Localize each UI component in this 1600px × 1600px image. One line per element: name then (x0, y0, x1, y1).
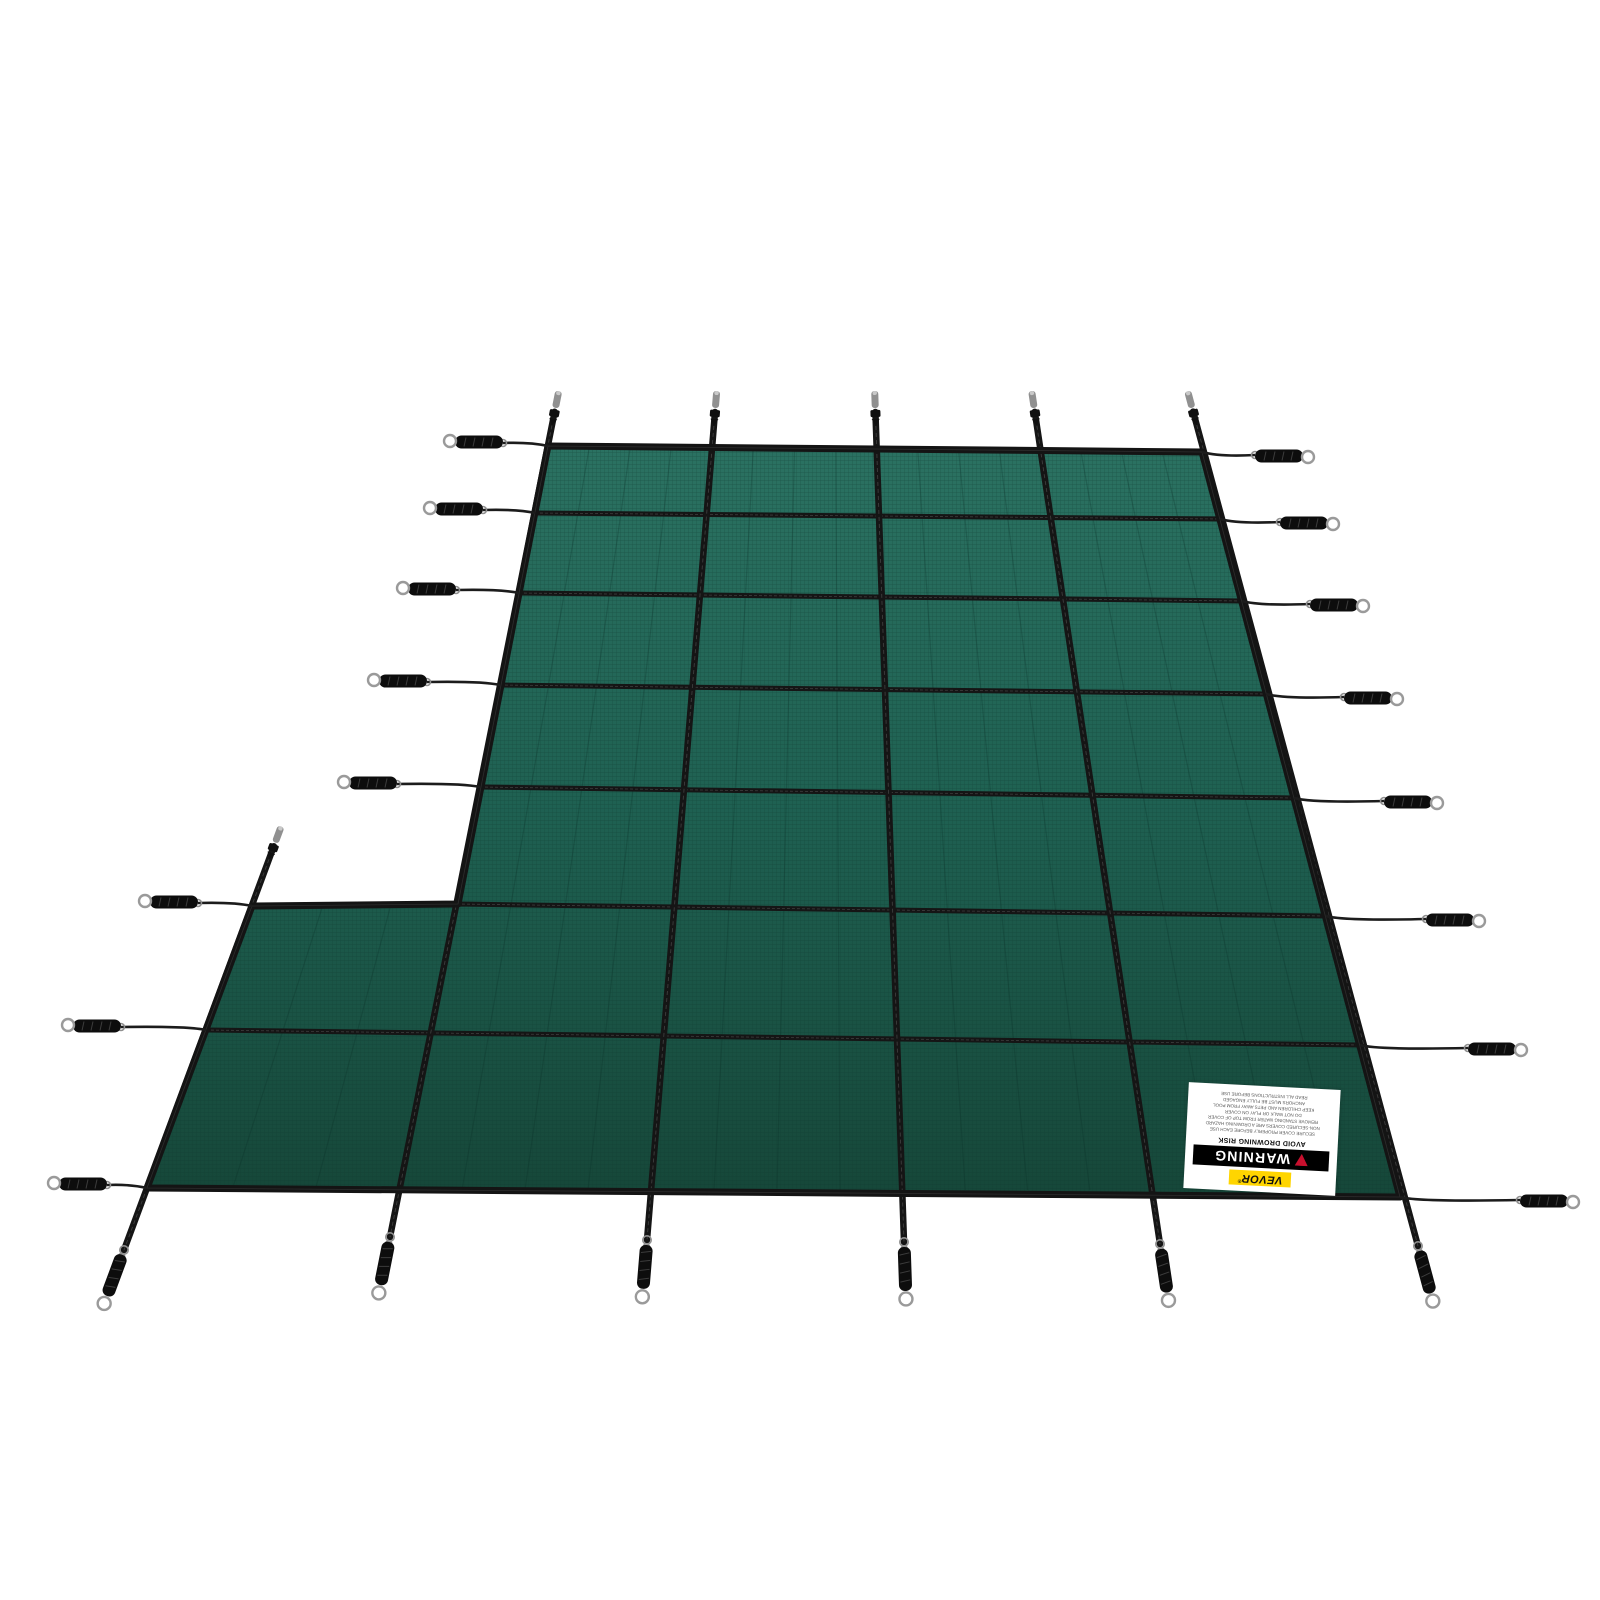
vevor-logo-text: VEVOR (1241, 1172, 1283, 1186)
spring-assembly (1266, 692, 1403, 706)
bottom-anchor (372, 1233, 395, 1300)
spring-assembly (1360, 1043, 1527, 1057)
warning-title: WARNING (1214, 1148, 1291, 1166)
spring-assembly (368, 674, 500, 688)
spring-assembly (1220, 517, 1339, 531)
scene (48, 390, 1579, 1310)
bottom-anchors (98, 1233, 1440, 1310)
spring-assembly (1202, 450, 1314, 464)
pool-cover-render (0, 0, 1600, 1600)
bottom-anchor (636, 1236, 653, 1304)
spring-assembly (397, 582, 519, 596)
spring-assembly (1294, 796, 1443, 810)
product-stage: VEVOR® WARNING AVOID DROWNING RISK SECUR… (0, 0, 1600, 1600)
anchor-pin (1027, 390, 1042, 426)
anchor-pin (870, 391, 881, 426)
warning-banner: WARNING (1193, 1144, 1329, 1171)
bottom-anchor (898, 1238, 913, 1306)
spring-assembly (1326, 914, 1485, 928)
warning-triangle-icon (1295, 1154, 1309, 1167)
spring-assembly (424, 502, 535, 516)
bottom-anchor (98, 1246, 129, 1310)
vevor-logo: VEVOR® (1229, 1169, 1291, 1187)
spring-assembly (444, 435, 548, 449)
bottom-anchor (1154, 1240, 1175, 1307)
warning-fine-print: SECURE COVER PROPERLY BEFORE EACH USENON… (1194, 1088, 1333, 1138)
spring-assembly (338, 776, 480, 790)
anchor-pin (709, 391, 722, 427)
spring-assembly (139, 895, 252, 909)
bottom-anchor (1413, 1242, 1439, 1308)
registered-mark: ® (1237, 1177, 1241, 1183)
spring-assembly (62, 1019, 206, 1033)
spring-assembly (48, 1177, 147, 1191)
spring-assembly (1242, 599, 1369, 613)
spring-assembly (1400, 1195, 1579, 1209)
warning-label: VEVOR® WARNING AVOID DROWNING RISK SECUR… (1183, 1082, 1340, 1196)
